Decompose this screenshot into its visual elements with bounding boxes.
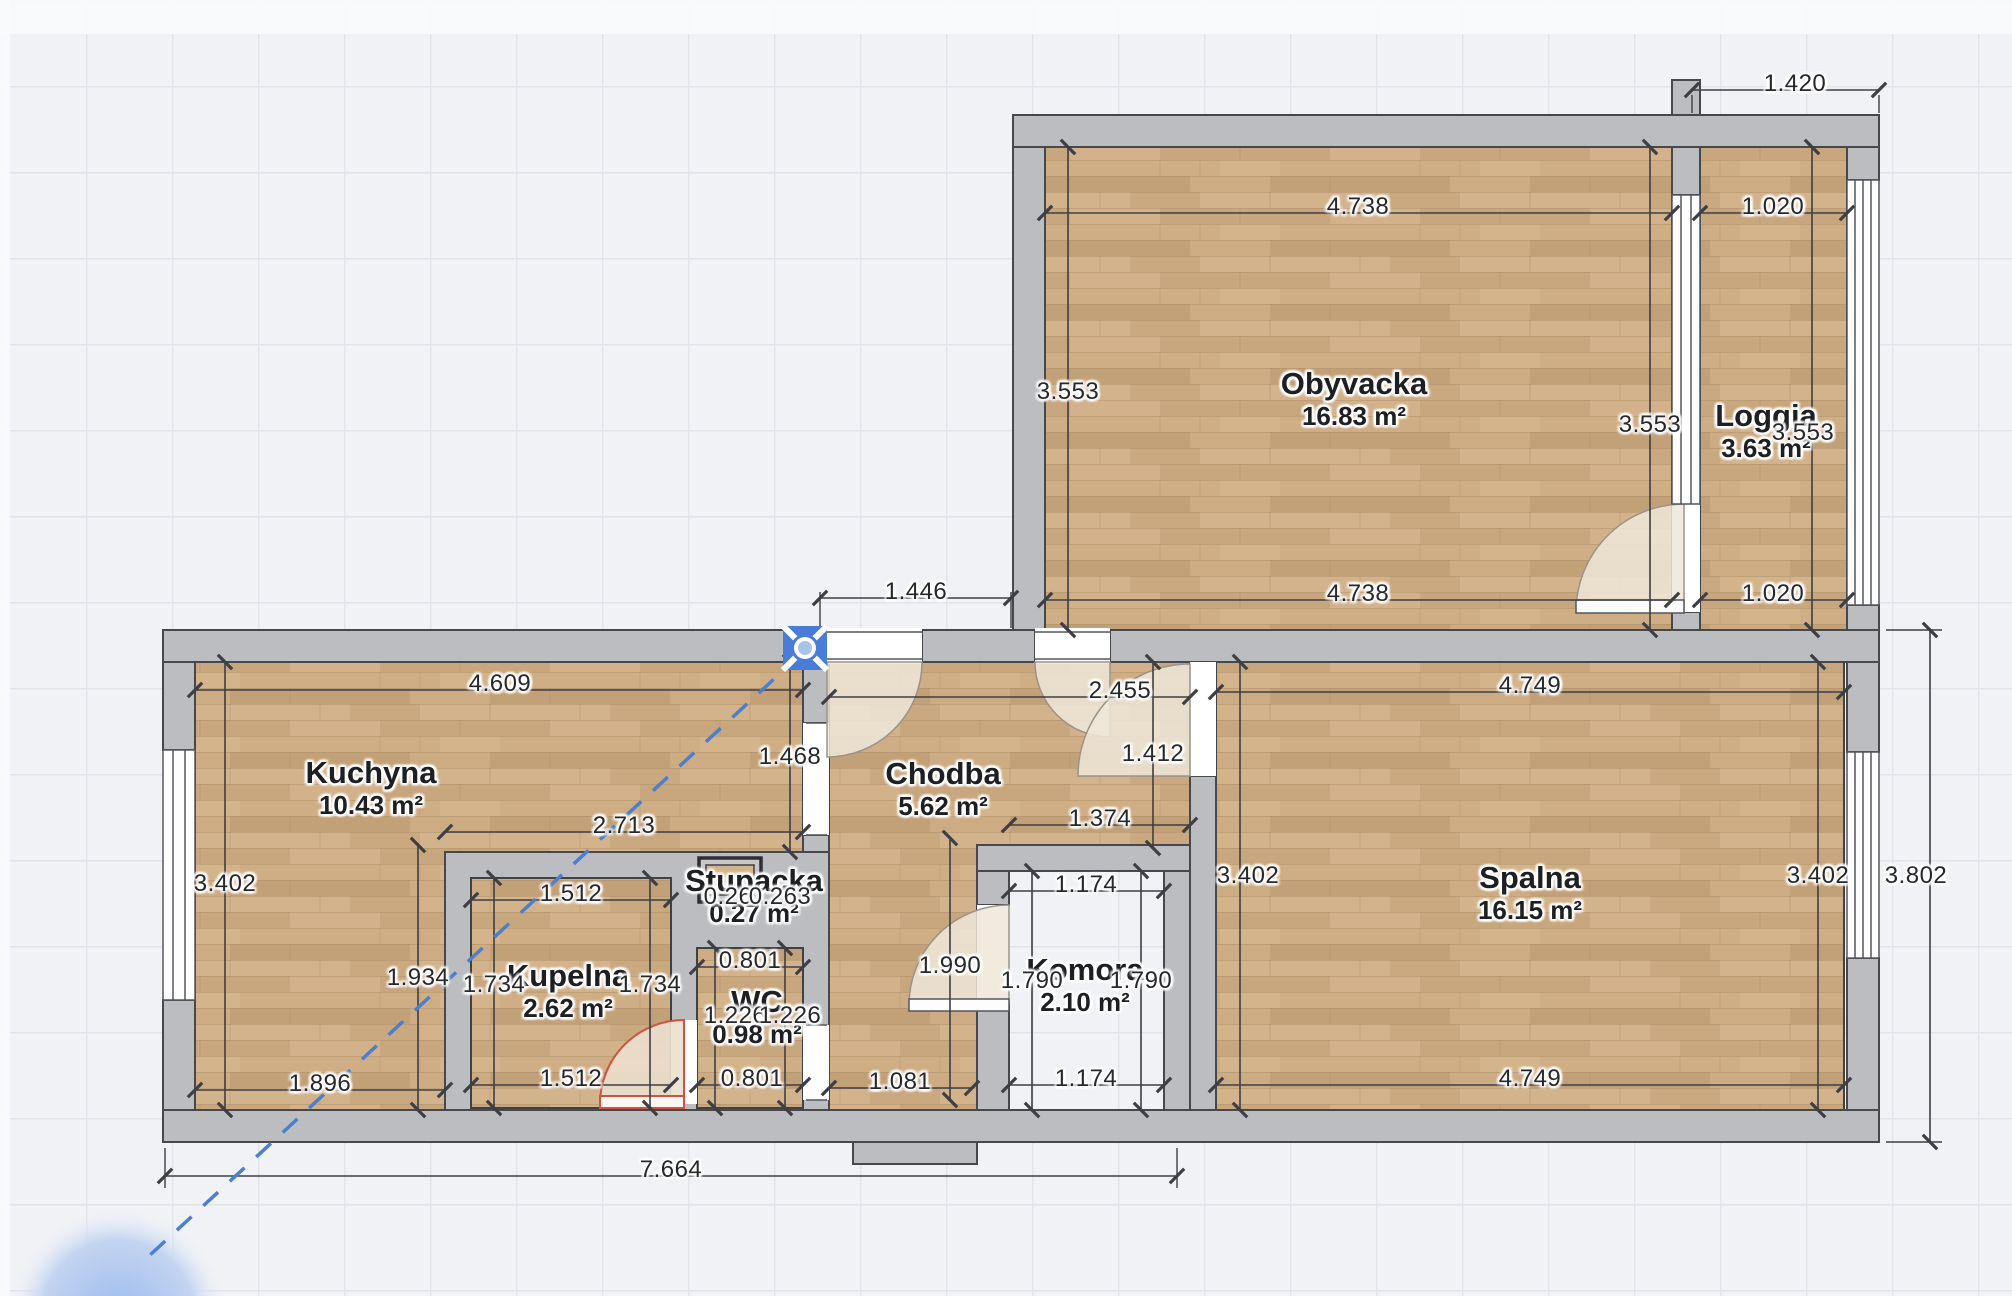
wall-loggia-right-bottom[interactable] (1847, 605, 1879, 630)
wall-band-left[interactable] (163, 630, 827, 662)
balcony-door-leaf[interactable] (1576, 600, 1684, 613)
railing-loggia-right[interactable] (1847, 180, 1879, 605)
wall-obyvacka-loggia-top[interactable] (1672, 147, 1700, 195)
left-light-band (0, 0, 10, 1296)
top-light-band (0, 0, 2012, 34)
kuchyna-door-opening[interactable] (803, 723, 829, 835)
floor-stupacka[interactable] (706, 865, 754, 895)
wall-band-mid[interactable] (922, 630, 1035, 662)
spalna-door-opening[interactable] (1190, 662, 1216, 776)
wall-right-spalna-top[interactable] (1847, 662, 1879, 752)
floorplan-drawing (0, 0, 2012, 1296)
floor-wc[interactable] (697, 948, 803, 1108)
window-spalna-right[interactable] (1847, 752, 1879, 958)
wall-obyvacka-loggia-bottom[interactable] (1672, 612, 1700, 630)
window-kuchyna-left[interactable] (163, 750, 195, 1000)
wall-left-upper-block[interactable] (1013, 147, 1045, 630)
wall-left-lower-top[interactable] (163, 662, 195, 750)
floor-spalna[interactable] (1216, 662, 1844, 1110)
wall-komora-right[interactable] (1164, 871, 1190, 1110)
wall-komora-left-lower[interactable] (977, 1005, 1009, 1110)
floorplan-canvas[interactable]: Obyvacka 16.83 m² Loggia 3.63 m² Kuchyna… (0, 0, 2012, 1296)
floor-obyvacka[interactable] (1045, 147, 1672, 630)
wall-top-upper-block[interactable] (1013, 115, 1879, 147)
window-obyvacka-loggia[interactable] (1672, 195, 1700, 504)
wall-bottom[interactable] (163, 1110, 1879, 1142)
wall-komora-top[interactable] (977, 845, 1190, 871)
wall-loggia-right-top[interactable] (1847, 147, 1879, 180)
move-handle-icon[interactable] (783, 626, 827, 670)
wall-kuchyna-chodba-bottom[interactable] (803, 835, 829, 852)
wc-door-opening[interactable] (803, 1025, 829, 1100)
wall-band-right[interactable] (1110, 630, 1879, 662)
floor-loggia[interactable] (1700, 147, 1847, 630)
wall-stub-above-loggia[interactable] (1672, 80, 1700, 115)
wall-bottom-step[interactable] (853, 1142, 977, 1164)
komora-door-leaf[interactable] (909, 999, 1009, 1011)
wall-komora-left-upper[interactable] (977, 871, 1009, 905)
wall-spalna-left[interactable] (1190, 776, 1216, 1110)
wall-left-lower-bottom[interactable] (163, 1000, 195, 1112)
kupelna-door-leaf-selected[interactable] (600, 1096, 684, 1108)
wall-right-spalna-bottom[interactable] (1847, 958, 1879, 1110)
